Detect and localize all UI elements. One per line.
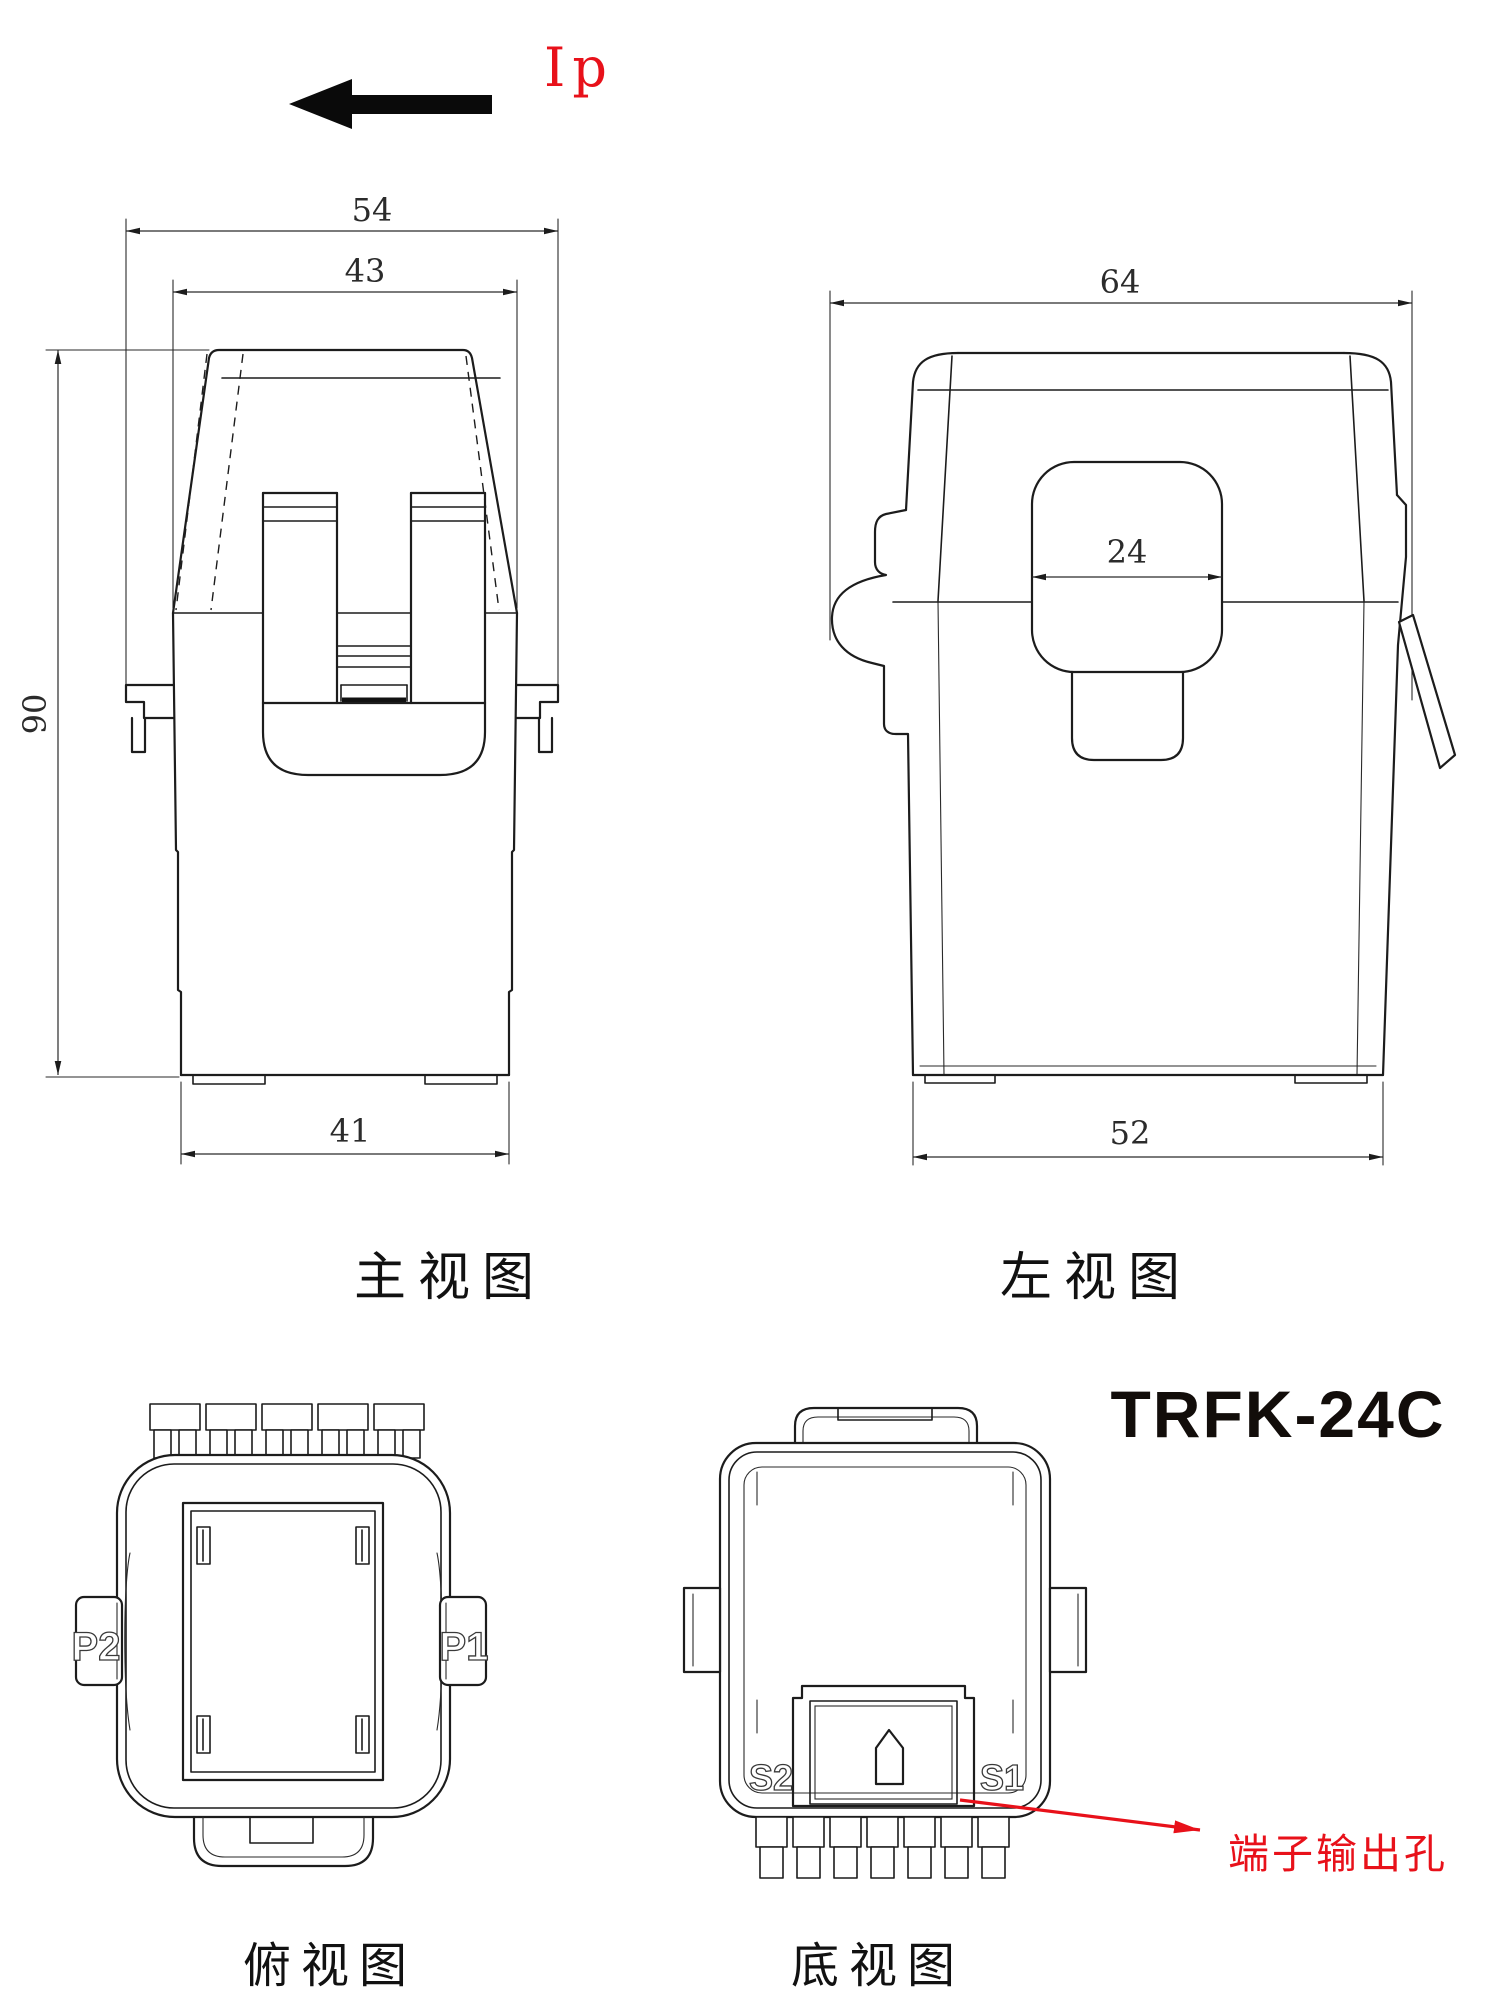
view-label-front: 主视图 (354, 1248, 546, 1308)
top-view-body: P2 P1 (72, 1455, 489, 1866)
dimension-front-bottom-width: 41 (181, 1082, 509, 1164)
current-direction-label: Ip (544, 36, 614, 99)
bottom-tab (194, 1817, 373, 1866)
terminal-comb-bottom (756, 1817, 1009, 1878)
terminal-tab-p2: P2 (72, 1597, 122, 1685)
dim-text-52: 52 (1110, 1114, 1151, 1152)
dim-text-24: 24 (1107, 533, 1148, 571)
terminal-label-p1: P1 (440, 1625, 489, 1669)
front-view-drawing: 54 43 90 41 (16, 191, 558, 1308)
dim-text-90: 90 (16, 694, 54, 735)
side-latch-left (126, 685, 173, 752)
left-view-drawing: 64 (830, 263, 1455, 1308)
top-tab (795, 1408, 977, 1443)
front-view-body (126, 350, 558, 1084)
left-view-body (832, 353, 1455, 1083)
side-tab-right (1050, 1588, 1086, 1672)
view-label-bottom: 底视图 (791, 1938, 965, 1994)
terminal-tab-p1: P1 (440, 1597, 489, 1685)
bottom-view-drawing: S2 S1 端子输出孔 底视图 (684, 1408, 1448, 1994)
dim-text-41: 41 (330, 1112, 371, 1150)
dimension-left-bottom-width: 52 (913, 1082, 1383, 1165)
release-lever (1399, 615, 1455, 768)
current-direction-arrow: Ip (289, 36, 614, 129)
terminal-label-s1: S1 (980, 1757, 1024, 1798)
dim-text-43: 43 (345, 252, 386, 290)
dimension-left-aperture: 24 (1032, 533, 1222, 577)
center-latch-stack (337, 646, 411, 701)
view-label-left: 左视图 (1000, 1248, 1192, 1308)
dimension-left-total-width: 64 (830, 263, 1412, 700)
side-latch-right (517, 685, 558, 752)
drawing-sheet: Ip 54 43 90 41 (0, 0, 1500, 2000)
annotation-terminal-hole: 端子输出孔 (1228, 1830, 1448, 1878)
terminal-label-s2: S2 (749, 1757, 793, 1798)
terminal-comb-top (150, 1404, 424, 1458)
bottom-view-body: S2 S1 (684, 1443, 1086, 1817)
technical-drawing: Ip 54 43 90 41 (0, 0, 1500, 2000)
dim-text-64: 64 (1100, 263, 1141, 301)
view-label-top: 俯视图 (243, 1938, 417, 1994)
left-arrow-icon (289, 79, 492, 129)
terminal-label-p2: P2 (72, 1625, 121, 1669)
dimension-front-height: 90 (16, 350, 209, 1077)
cable-window (263, 703, 485, 775)
top-view-drawing: P2 P1 俯视图 (72, 1404, 489, 1994)
part-number: TRFK-24C (1110, 1377, 1445, 1451)
side-tab-left (684, 1588, 720, 1672)
dim-text-54: 54 (352, 191, 393, 229)
dimension-front-body-width: 43 (173, 252, 517, 608)
core-prongs (263, 493, 485, 703)
